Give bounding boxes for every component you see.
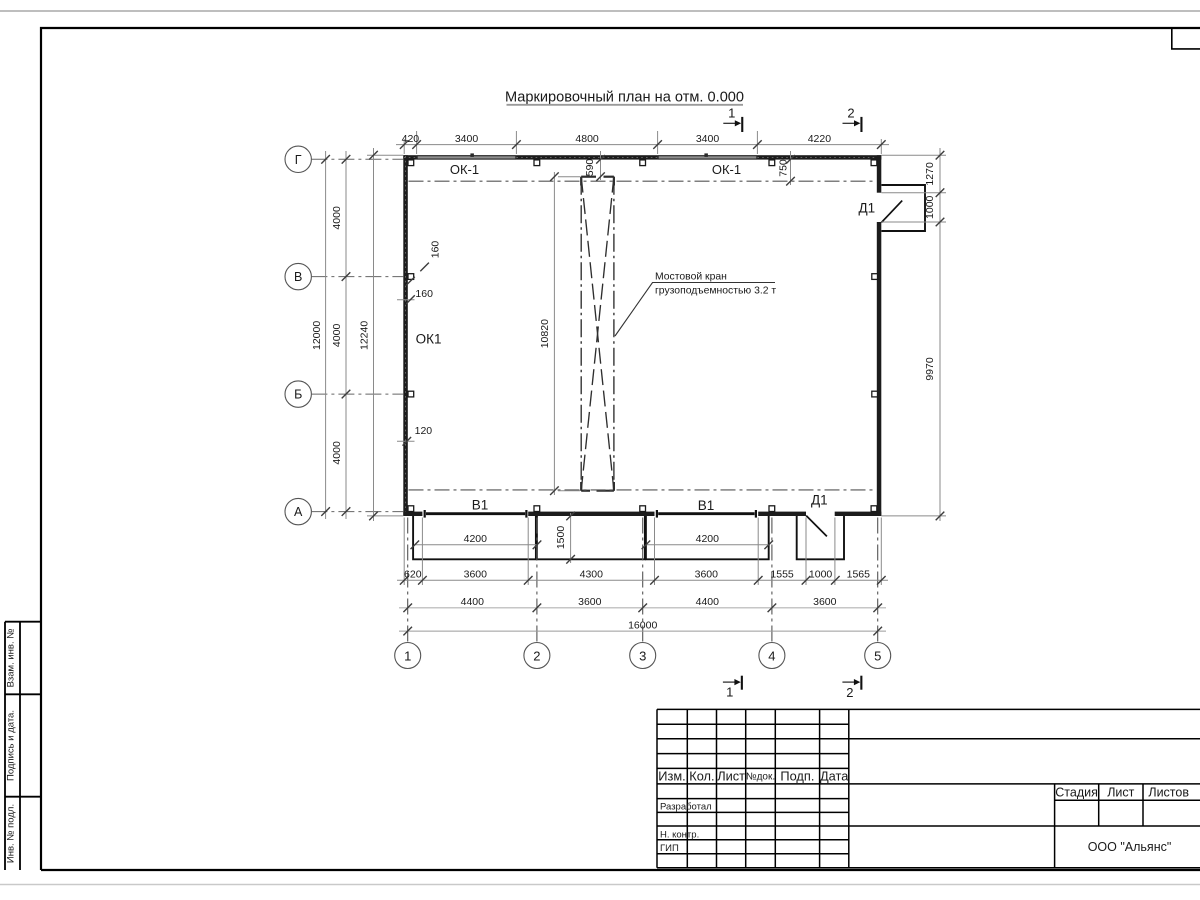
- svg-text:3400: 3400: [455, 133, 479, 145]
- svg-text:420: 420: [402, 133, 420, 145]
- svg-text:10820: 10820: [539, 319, 551, 348]
- svg-text:4220: 4220: [808, 133, 832, 145]
- svg-text:4300: 4300: [580, 569, 604, 581]
- svg-text:12000: 12000: [311, 321, 323, 350]
- svg-text:В: В: [294, 270, 302, 284]
- svg-text:А: А: [294, 505, 303, 519]
- svg-text:грузоподъемностью 3.2 т: грузоподъемностью 3.2 т: [655, 286, 776, 297]
- svg-text:Взам. инв. №: Взам. инв. №: [5, 629, 16, 688]
- svg-text:2: 2: [847, 106, 854, 121]
- svg-text:Лист: Лист: [1107, 786, 1134, 800]
- svg-text:1000: 1000: [924, 195, 936, 219]
- svg-text:Г: Г: [295, 153, 302, 167]
- svg-text:Маркировочный план на отм. 0.0: Маркировочный план на отм. 0.000: [505, 90, 744, 106]
- svg-text:4000: 4000: [331, 324, 343, 348]
- svg-text:4400: 4400: [696, 596, 720, 608]
- svg-text:ОК1: ОК1: [416, 332, 442, 347]
- svg-text:3600: 3600: [813, 596, 837, 608]
- svg-text:3600: 3600: [578, 596, 602, 608]
- svg-text:Дата: Дата: [820, 769, 849, 784]
- svg-text:3: 3: [639, 648, 646, 663]
- svg-text:16000: 16000: [628, 619, 657, 631]
- svg-text:1565: 1565: [847, 569, 871, 581]
- svg-text:Б: Б: [294, 388, 302, 402]
- svg-text:Листов: Листов: [1148, 786, 1189, 800]
- svg-text:№док.: №док.: [746, 772, 775, 783]
- svg-text:9970: 9970: [924, 357, 936, 381]
- svg-text:3600: 3600: [464, 569, 488, 581]
- svg-text:4400: 4400: [461, 596, 485, 608]
- svg-text:Мостовой кран: Мостовой кран: [655, 272, 727, 283]
- svg-text:Лист: Лист: [717, 769, 745, 784]
- svg-text:4000: 4000: [331, 441, 343, 465]
- svg-text:ГИП: ГИП: [660, 843, 679, 854]
- svg-text:3400: 3400: [696, 133, 720, 145]
- svg-text:1: 1: [726, 684, 733, 699]
- svg-text:Д1: Д1: [858, 200, 875, 215]
- svg-text:ОК-1: ОК-1: [712, 162, 741, 177]
- svg-text:750: 750: [778, 159, 790, 177]
- svg-text:1270: 1270: [924, 162, 936, 186]
- svg-text:1555: 1555: [770, 569, 794, 581]
- svg-text:5: 5: [874, 648, 881, 663]
- svg-text:4200: 4200: [696, 533, 720, 545]
- svg-text:4800: 4800: [575, 133, 599, 145]
- svg-text:1: 1: [728, 106, 735, 121]
- svg-text:В1: В1: [472, 497, 489, 512]
- svg-text:Изм.: Изм.: [658, 769, 685, 784]
- svg-text:Подпись и дата.: Подпись и дата.: [5, 710, 16, 781]
- svg-text:2: 2: [533, 648, 540, 663]
- svg-text:ООО "Альянс": ООО "Альянс": [1088, 840, 1172, 854]
- svg-text:1500: 1500: [555, 526, 567, 550]
- svg-text:620: 620: [404, 569, 422, 581]
- svg-text:Стадия: Стадия: [1055, 786, 1098, 800]
- svg-text:ОК-1: ОК-1: [450, 162, 479, 177]
- svg-text:3600: 3600: [695, 569, 719, 581]
- svg-text:4200: 4200: [464, 533, 488, 545]
- svg-text:Н. контр.: Н. контр.: [660, 829, 699, 840]
- svg-text:2: 2: [846, 685, 853, 700]
- svg-text:В1: В1: [698, 498, 715, 513]
- svg-text:12240: 12240: [359, 321, 371, 350]
- svg-text:Разработал: Разработал: [660, 801, 712, 812]
- svg-text:Кол.: Кол.: [689, 769, 714, 784]
- svg-text:120: 120: [415, 425, 433, 437]
- svg-text:1000: 1000: [809, 569, 833, 581]
- svg-text:4: 4: [768, 648, 775, 663]
- svg-text:1: 1: [404, 648, 411, 663]
- svg-text:590: 590: [584, 159, 596, 177]
- svg-text:160: 160: [415, 288, 433, 300]
- svg-text:Подп.: Подп.: [780, 769, 814, 784]
- svg-text:Д1: Д1: [811, 492, 828, 507]
- svg-text:160: 160: [430, 241, 442, 259]
- svg-text:Инв. № подл.: Инв. № подл.: [5, 804, 16, 863]
- svg-text:4000: 4000: [331, 206, 343, 230]
